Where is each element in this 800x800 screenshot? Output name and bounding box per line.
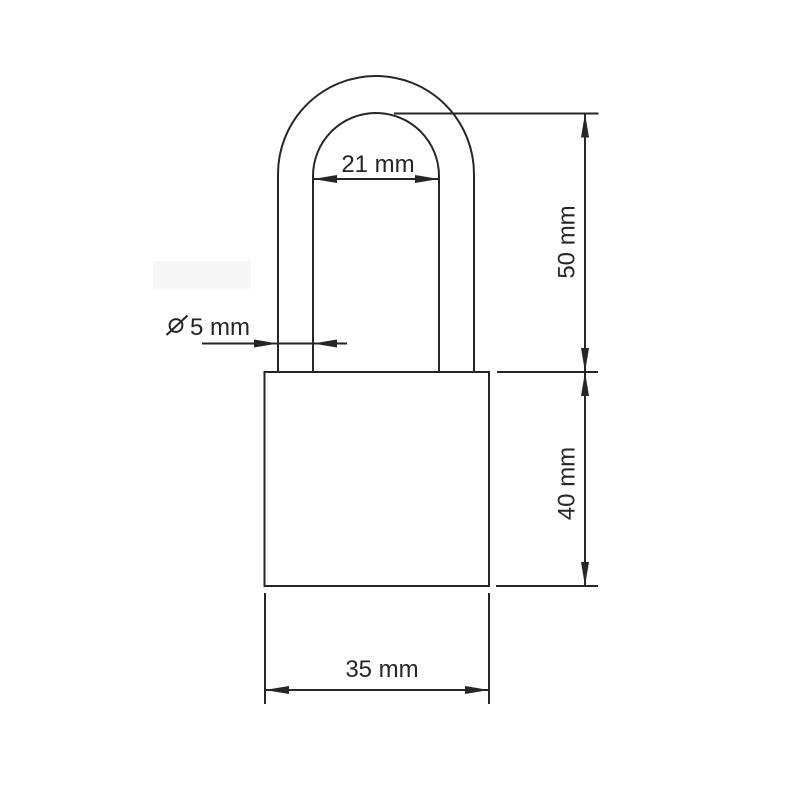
- svg-text:50 mm: 50 mm: [554, 205, 581, 278]
- svg-text:5 mm: 5 mm: [190, 314, 250, 341]
- svg-text:21 mm: 21 mm: [341, 151, 414, 178]
- svg-text:35 mm: 35 mm: [345, 656, 418, 683]
- svg-text:40 mm: 40 mm: [554, 447, 581, 520]
